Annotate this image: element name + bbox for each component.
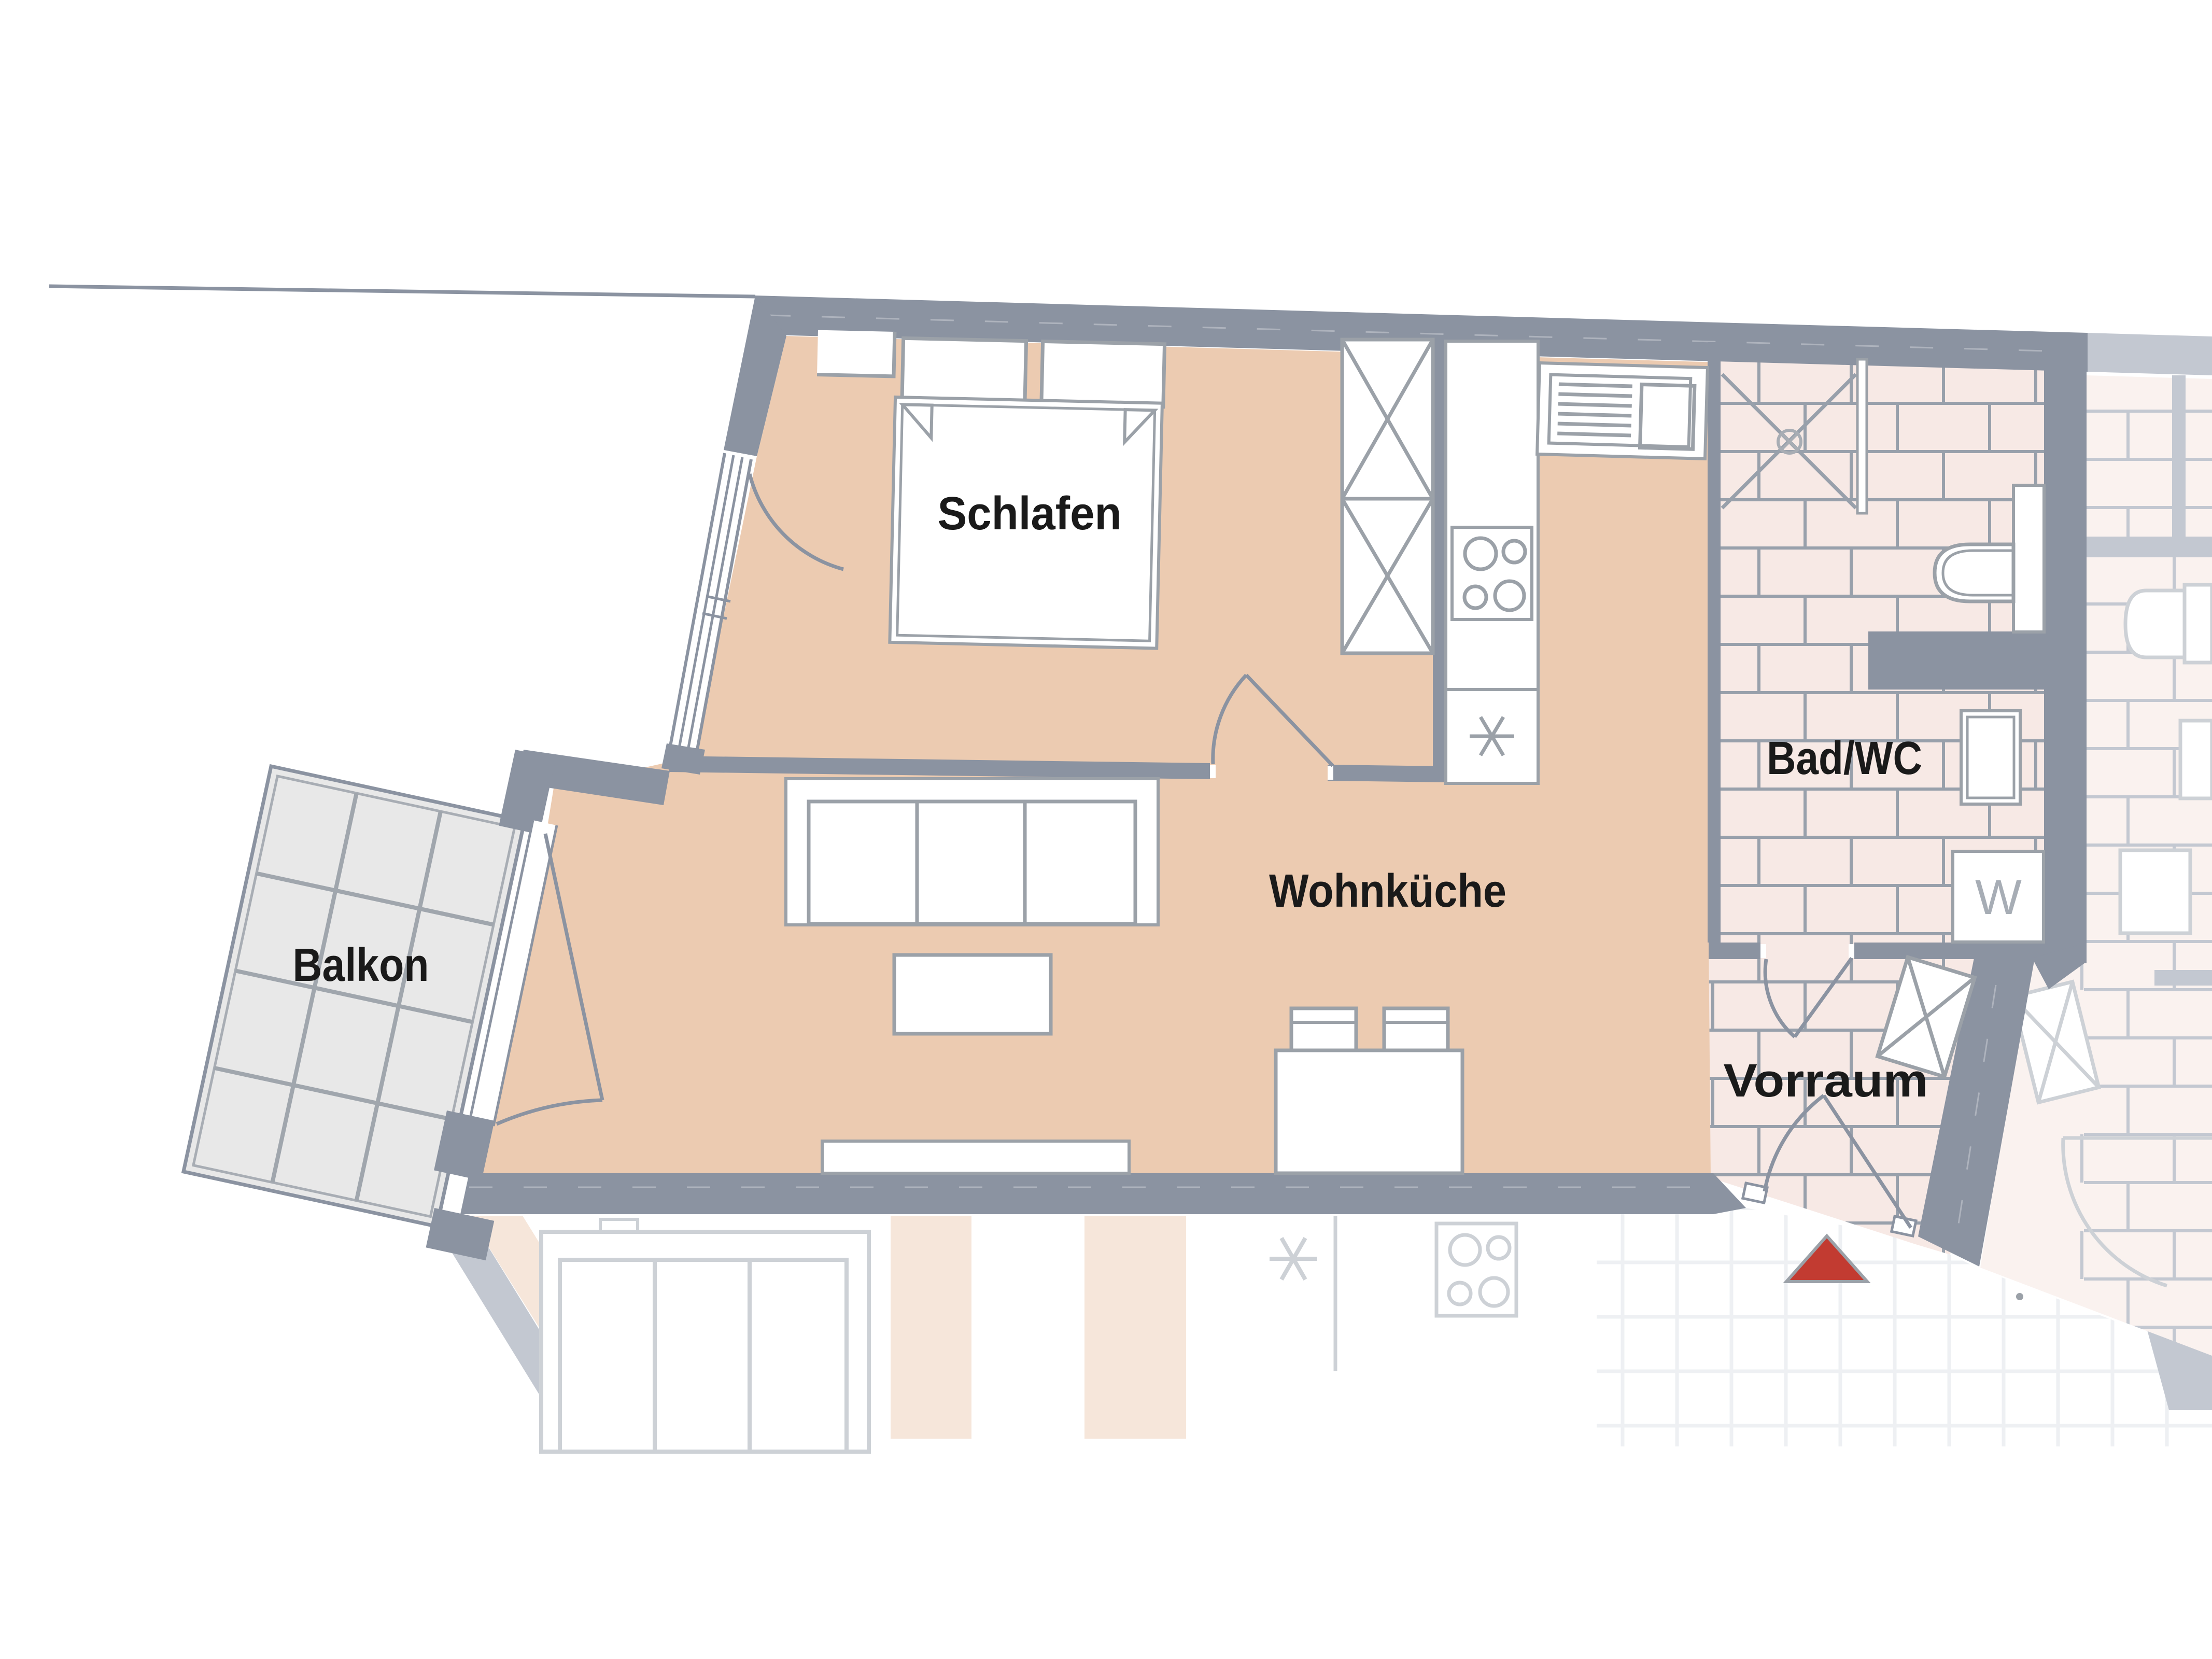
svg-text:Balkon: Balkon	[293, 939, 429, 991]
svg-text:Bad/WC: Bad/WC	[1767, 733, 1922, 784]
svg-text:Vorraum: Vorraum	[1724, 1055, 1928, 1107]
svg-text:W: W	[1975, 870, 2022, 925]
svg-text:Schlafen: Schlafen	[938, 488, 1122, 540]
svg-text:Wohnküche: Wohnküche	[1269, 865, 1506, 917]
